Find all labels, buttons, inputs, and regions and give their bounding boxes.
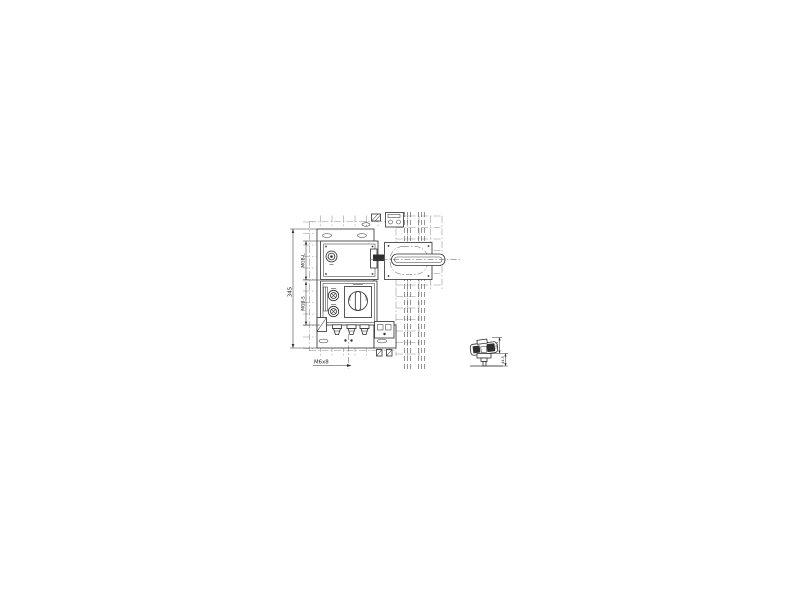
cable-glands (333, 325, 370, 335)
overall-height-label: 345 (287, 287, 293, 297)
lower-module-label: MGB-S (301, 296, 307, 311)
mounting-screw-label: M6x8 (314, 360, 329, 366)
dimension-lower-module: MGB-S (301, 282, 308, 326)
door-guide-bracket (362, 213, 404, 228)
dimension-drawing: M6x8 345 MGB-L MGB-S (0, 0, 800, 600)
terminal-box (375, 322, 395, 339)
dimension-overall-height: 345 (287, 229, 317, 348)
detail-dim-lower-label: 44.5 (501, 356, 505, 364)
control-module (321, 281, 378, 325)
side-view-detail: 25.1 44.5 (469, 338, 508, 367)
upper-module-label: MGB-L (301, 253, 307, 268)
technical-drawing-canvas: M6x8 345 MGB-L MGB-S (0, 0, 800, 600)
rotary-key-switch (345, 285, 372, 318)
locking-module (321, 241, 385, 280)
detail-dim-upper-label: 25.1 (495, 342, 499, 350)
handle-entry-slot (371, 249, 385, 268)
